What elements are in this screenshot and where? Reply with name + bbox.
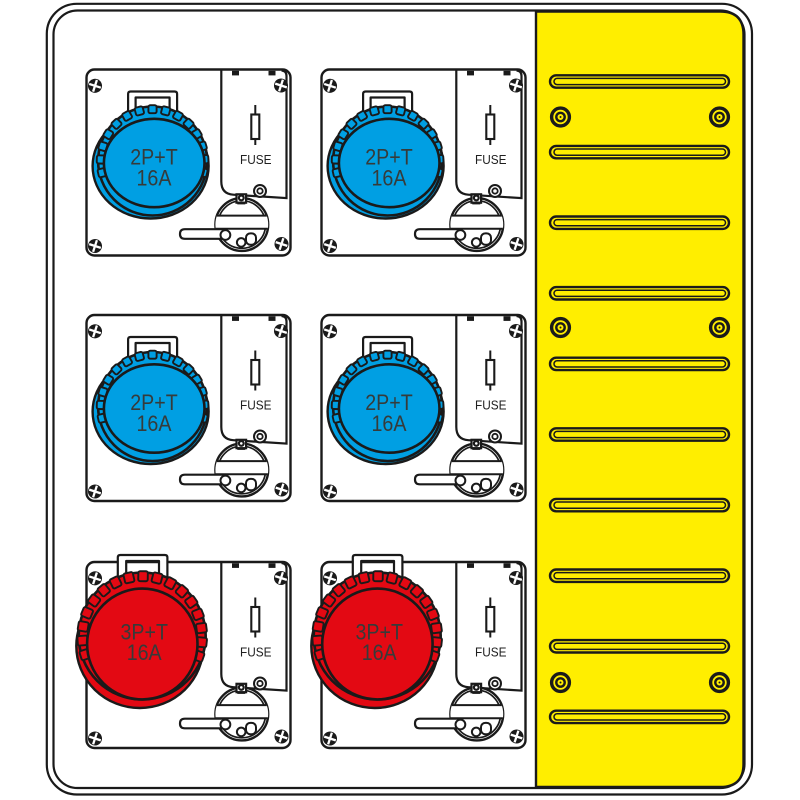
svg-text:FUSE: FUSE [240,152,272,167]
svg-text:FUSE: FUSE [475,644,507,659]
svg-text:16A: 16A [372,166,407,191]
svg-text:FUSE: FUSE [475,152,507,167]
svg-text:FUSE: FUSE [240,644,272,659]
svg-text:16A: 16A [127,640,162,665]
svg-text:16A: 16A [362,640,397,665]
svg-text:FUSE: FUSE [475,397,507,412]
svg-text:FUSE: FUSE [240,397,272,412]
svg-text:16A: 16A [137,411,172,436]
svg-text:16A: 16A [372,411,407,436]
svg-text:16A: 16A [137,166,172,191]
